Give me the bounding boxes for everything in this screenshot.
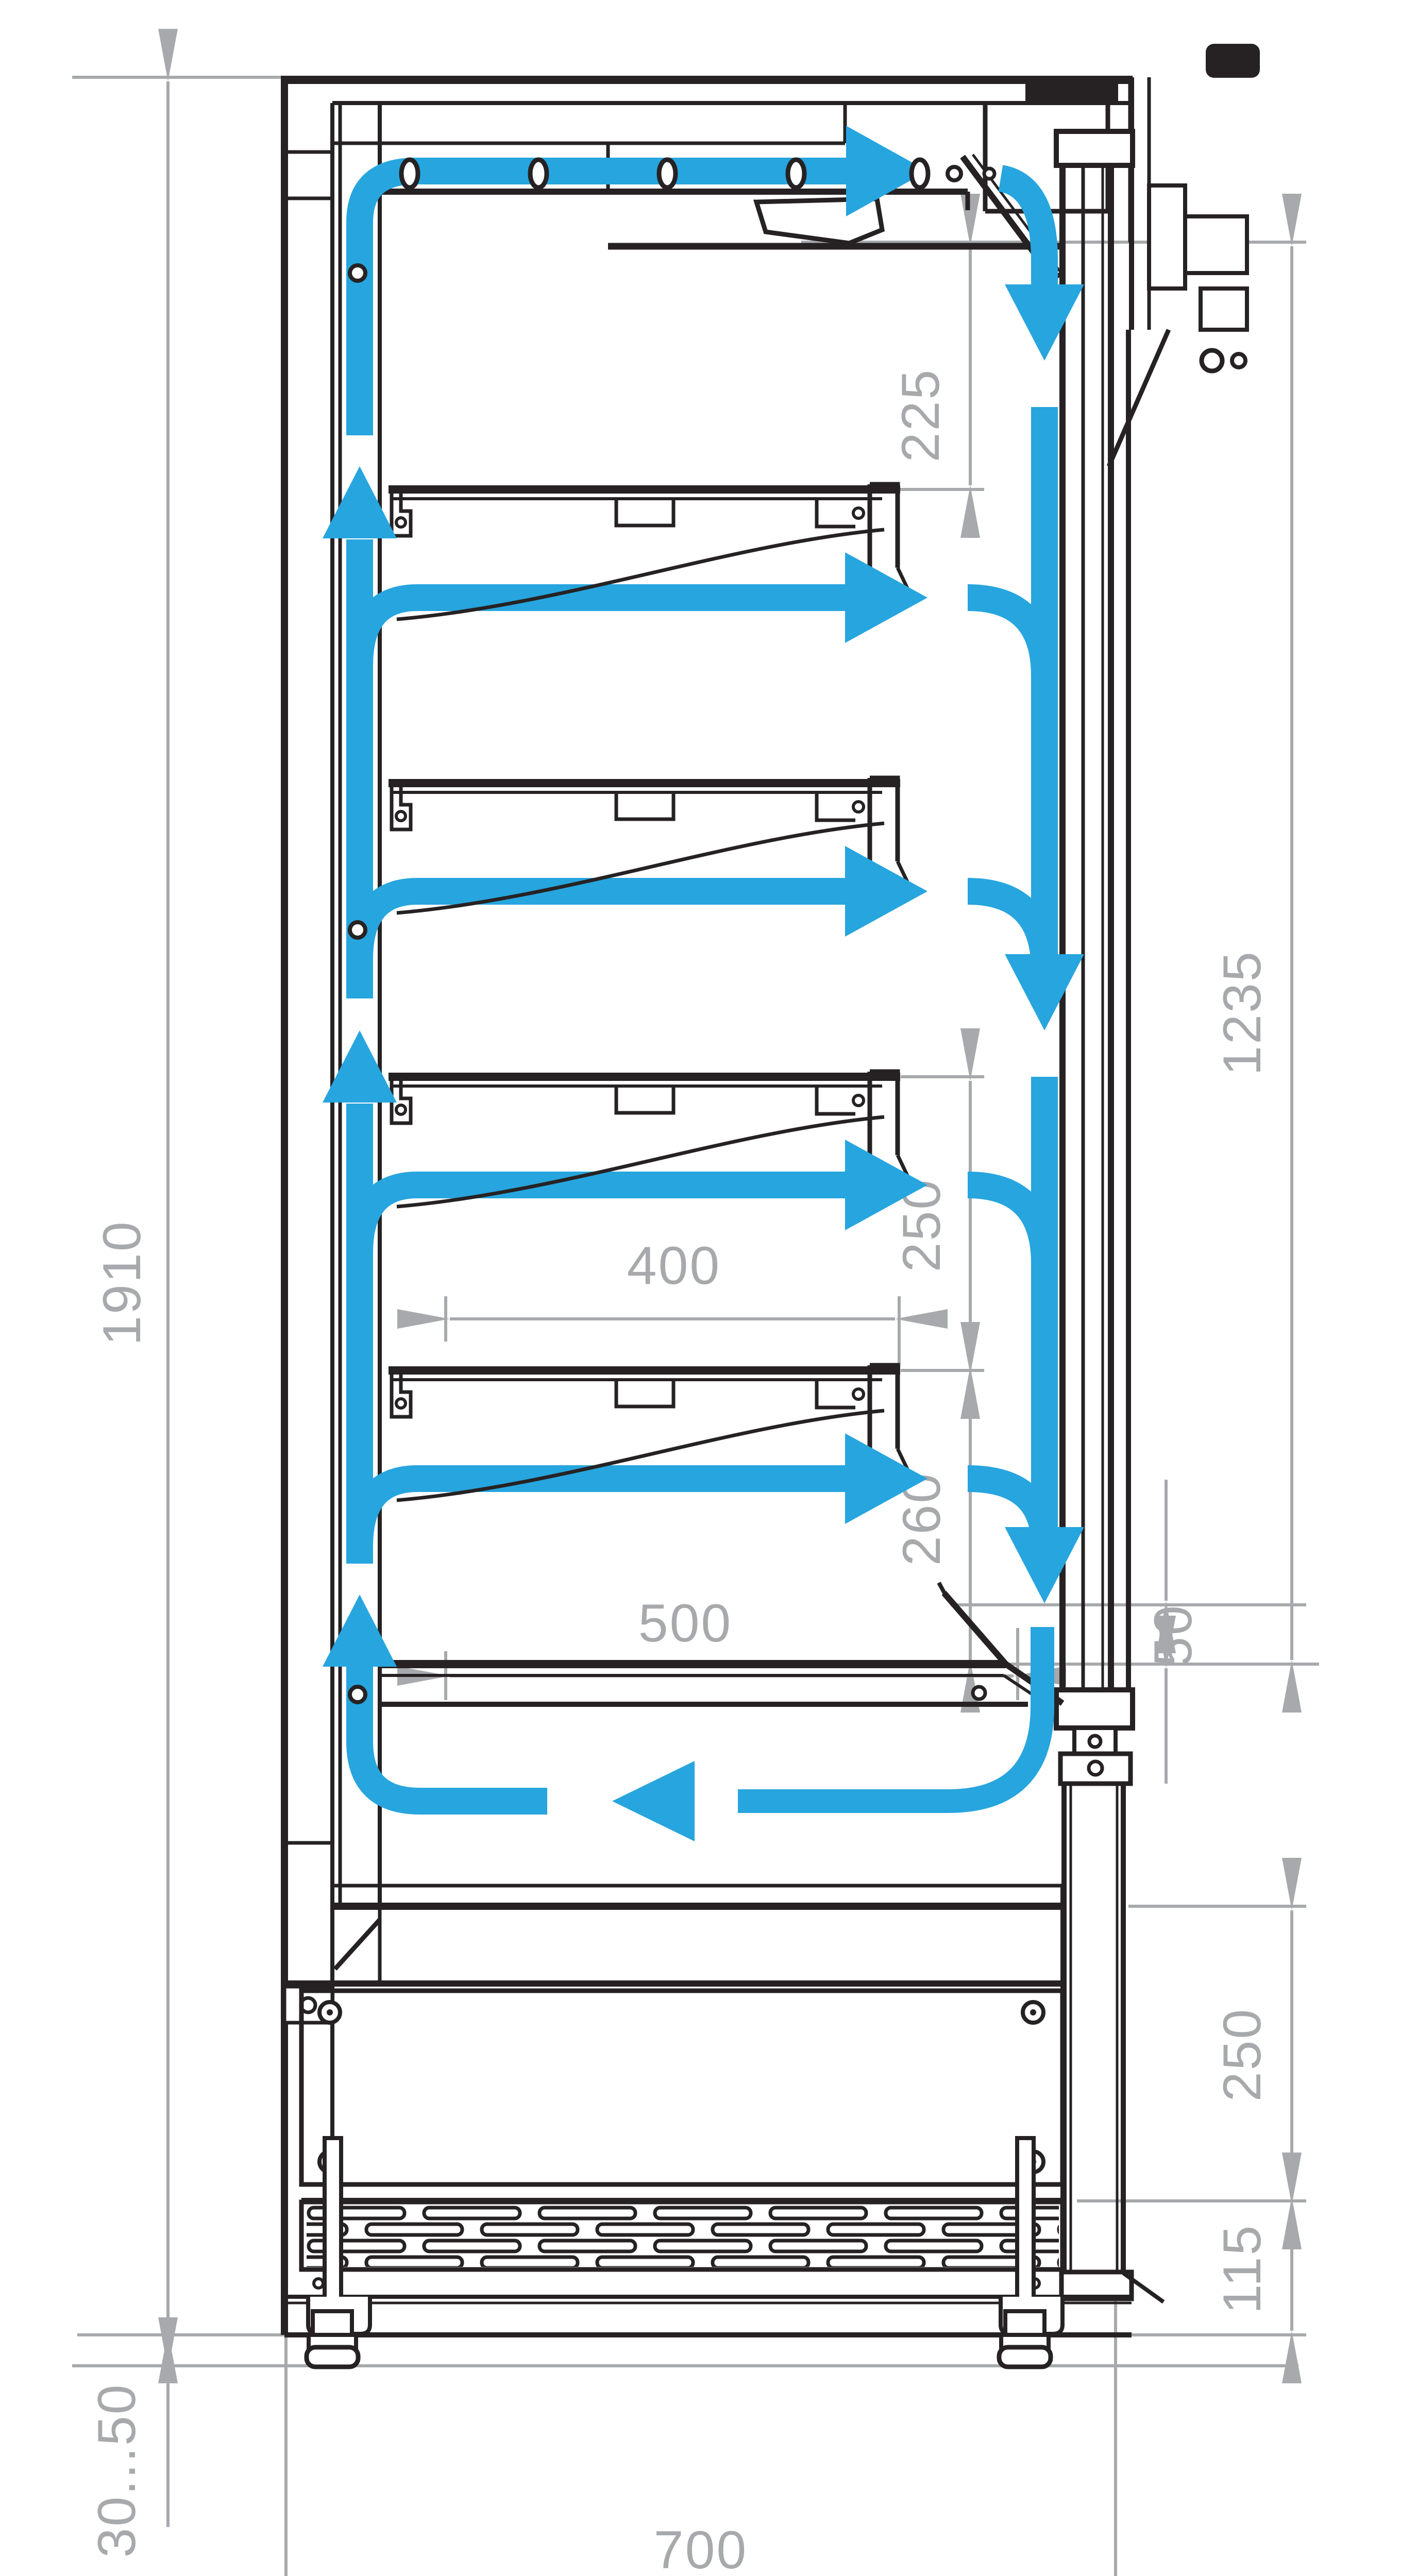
dim-115: 115 — [1212, 2205, 1292, 2331]
airflow-supply-2 — [360, 846, 927, 959]
dim-225: 225 — [891, 246, 970, 485]
airflow-supply-1 — [360, 552, 927, 666]
dim-700: 700 — [290, 2520, 1111, 2576]
dim-label-115: 115 — [1212, 2224, 1272, 2314]
dim-label-225: 225 — [891, 368, 951, 463]
dim-50: 50 — [1143, 1480, 1203, 1784]
dim-label-500: 500 — [638, 1594, 733, 1653]
dim-250-base: 250 — [1212, 1910, 1292, 2197]
dim-label-250-base: 250 — [1212, 2008, 1272, 2102]
airflow-return-to-riser — [360, 1667, 547, 1801]
dim-1910: 1910 — [92, 81, 168, 2331]
dim-label-1910: 1910 — [92, 1220, 152, 1345]
vent-grille — [301, 2202, 1062, 2269]
dim-label-700: 700 — [654, 2520, 748, 2576]
dim-label-50: 50 — [1143, 1604, 1203, 1667]
panel-screws — [319, 2002, 1043, 2172]
airflow-supply-4 — [360, 1433, 927, 1547]
page: 1910 30...50 225 250 260 1235 50 — [0, 0, 1417, 2576]
dim-30-50: 30...50 — [87, 2370, 168, 2558]
dim-1235: 1235 — [1212, 246, 1292, 1660]
dim-250-shelf: 250 — [892, 1081, 970, 1366]
dim-400: 400 — [450, 1236, 895, 1319]
airflow-curtain-entry — [1001, 178, 1044, 284]
dim-label-30-50: 30...50 — [87, 2383, 147, 2557]
dim-label-1235: 1235 — [1212, 950, 1272, 1075]
dim-label-400: 400 — [627, 1236, 721, 1296]
dim-260: 260 — [892, 1375, 970, 1660]
cabinet-structure — [281, 44, 1260, 2367]
cabinet-cross-section-drawing: 1910 30...50 225 250 260 1235 50 — [0, 0, 1417, 2576]
